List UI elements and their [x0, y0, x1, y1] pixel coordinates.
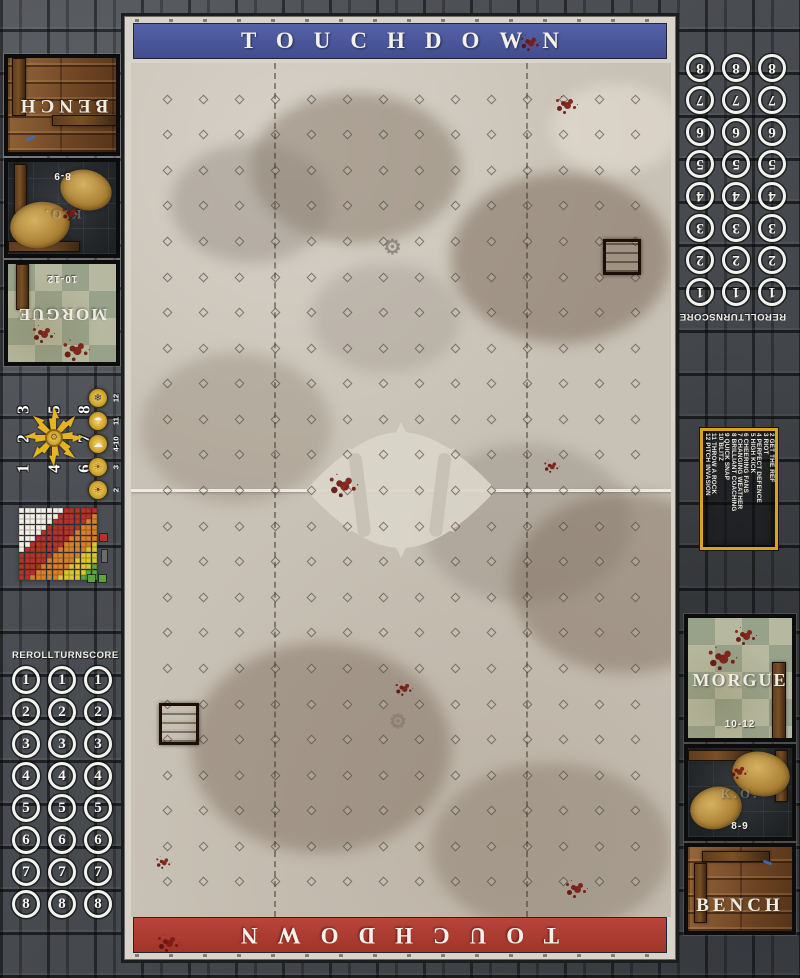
- grid-marker: [235, 94, 245, 104]
- grid-marker: [163, 130, 173, 140]
- grid-marker: [199, 735, 209, 745]
- grid-marker: [595, 308, 605, 318]
- grid-marker: [415, 663, 425, 673]
- range-cell-quick-pass: [58, 508, 63, 513]
- range-cell-short-pass: [53, 519, 58, 524]
- range-cell-long-bomb: [69, 564, 74, 569]
- grid-marker: [235, 379, 245, 389]
- grid-marker: [343, 663, 353, 673]
- grid-marker: [451, 165, 461, 175]
- wood-beam: [702, 851, 770, 862]
- grid-marker: [487, 450, 497, 460]
- grid-marker: [595, 699, 605, 709]
- weather-roll-label: 3: [106, 461, 126, 474]
- tracker-circle-3: 3: [722, 214, 750, 242]
- range-cell-short-pass: [30, 570, 35, 575]
- range-cell-long-pass: [47, 575, 52, 580]
- range-cell-long-pass: [86, 519, 91, 524]
- grid-marker: [307, 592, 317, 602]
- tracker-circle-8: 8: [48, 890, 76, 918]
- playing-field: ⚙ ⚙: [131, 63, 671, 917]
- blood-splatter: [70, 346, 76, 352]
- blood-splatter: [715, 653, 722, 660]
- grid-marker: [415, 735, 425, 745]
- grid-marker: [487, 735, 497, 745]
- range-cell-quick-pass: [30, 525, 35, 530]
- grid-marker: [235, 663, 245, 673]
- grid-marker: [343, 486, 353, 496]
- weather-roll-label: 12: [106, 392, 126, 405]
- range-cell-short-pass: [64, 530, 69, 535]
- grid-marker: [631, 486, 641, 496]
- range-cell-long-pass: [69, 558, 74, 563]
- dugout-ko-right: K.O. 8-9: [684, 744, 796, 841]
- grid-marker: [451, 94, 461, 104]
- grid-marker: [415, 877, 425, 887]
- grid-marker: [559, 521, 569, 531]
- tracker-circle-4: 4: [84, 762, 112, 790]
- grid-marker: [595, 165, 605, 175]
- kickoff-line: 5 HIGH KICK: [748, 433, 754, 545]
- grid-marker: [163, 557, 173, 567]
- range-cell-quick-pass: [41, 519, 46, 524]
- grid-marker: [451, 521, 461, 531]
- tracker-circle-4: 4: [48, 762, 76, 790]
- range-cell-long-pass: [69, 547, 74, 552]
- kickoff-table-lines: 2 GET THE REF3 RIOT4 PERFECT DEFENCE5 HI…: [704, 433, 774, 545]
- grid-marker: [163, 806, 173, 816]
- grid-marker: [631, 379, 641, 389]
- range-cell-long-pass: [75, 547, 80, 552]
- tracker-circle-5: 5: [758, 150, 786, 178]
- tracker-circle-8: 8: [12, 890, 40, 918]
- range-cell-long-pass: [53, 558, 58, 563]
- range-cell-short-pass: [53, 530, 58, 535]
- range-cell-long-pass: [86, 536, 91, 541]
- dugout-ko-left: 8-9 K.O.: [4, 158, 120, 258]
- kickoff-line: 8 BRILLIANT COACHING: [729, 433, 735, 545]
- range-cell-long-pass: [36, 570, 41, 575]
- range-cell-long-bomb: [75, 564, 80, 569]
- range-cell-quick-pass: [19, 519, 24, 524]
- grid-marker: [199, 699, 209, 709]
- frame-rivets-bottom: [135, 954, 665, 957]
- range-cell-long-bomb: [81, 553, 86, 558]
- range-cell-short-pass: [53, 536, 58, 541]
- range-cell-quick-pass: [19, 547, 24, 552]
- grid-marker: [379, 699, 389, 709]
- grid-marker: [199, 450, 209, 460]
- grid-marker: [559, 201, 569, 211]
- range-cell-long-pass: [53, 564, 58, 569]
- range-cell-short-pass: [75, 514, 80, 519]
- grid-marker: [415, 486, 425, 496]
- range-cell-long-pass: [53, 553, 58, 558]
- blood-bowl-game-mat: TOUCHDOWN TOUCHDOWN: [0, 0, 800, 978]
- grid-marker: [451, 663, 461, 673]
- grid-marker: [451, 414, 461, 424]
- range-cell-long-pass: [47, 570, 52, 575]
- range-cell-short-pass: [81, 519, 86, 524]
- grid-marker: [379, 379, 389, 389]
- grid-marker: [235, 450, 245, 460]
- tracker-grid: 111222333444555666777888: [12, 666, 112, 918]
- grid-marker: [163, 877, 173, 887]
- range-cell-short-pass: [30, 547, 35, 552]
- grid-marker: [235, 592, 245, 602]
- tracker-header-score: SCORE: [82, 650, 118, 661]
- tracker-circle-1: 1: [758, 278, 786, 306]
- tracker-circle-1: 1: [84, 666, 112, 694]
- grid-marker: [451, 592, 461, 602]
- grid-marker: [415, 450, 425, 460]
- grid-marker: [235, 414, 245, 424]
- morgue-label: MORGUE: [8, 304, 116, 324]
- range-cell-short-pass: [58, 530, 63, 535]
- grid-marker: [487, 130, 497, 140]
- grid-marker: [343, 272, 353, 282]
- range-cell-short-pass: [81, 514, 86, 519]
- grid-marker: [307, 770, 317, 780]
- tracker-circle-2: 2: [758, 246, 786, 274]
- range-cell-short-pass: [69, 508, 74, 513]
- grid-marker: [595, 486, 605, 496]
- grid-marker: [163, 165, 173, 175]
- range-cell-long-pass: [47, 564, 52, 569]
- range-cell-long-pass: [30, 575, 35, 580]
- grid-marker: [487, 272, 497, 282]
- grid-marker: [379, 557, 389, 567]
- grid-marker: [631, 592, 641, 602]
- grid-marker: [487, 841, 497, 851]
- grid-marker: [343, 201, 353, 211]
- range-cell-short-pass: [64, 519, 69, 524]
- grid-marker: [379, 521, 389, 531]
- grid-marker: [631, 557, 641, 567]
- grid-marker: [415, 165, 425, 175]
- grid-marker: [631, 806, 641, 816]
- grid-marker: [199, 308, 209, 318]
- grid-marker: [379, 272, 389, 282]
- grid-marker: [307, 272, 317, 282]
- range-cell-short-pass: [36, 536, 41, 541]
- grid-marker: [559, 414, 569, 424]
- grid-marker: [343, 343, 353, 353]
- range-cell-quick-pass: [19, 542, 24, 547]
- wide-zone-line-right: [526, 63, 528, 917]
- grid-marker: [559, 236, 569, 246]
- grid-marker: [379, 735, 389, 745]
- range-cell-long-pass: [92, 514, 97, 519]
- grid-marker: [199, 486, 209, 496]
- grid-marker: [379, 94, 389, 104]
- range-cell-out-of-range: [92, 564, 97, 569]
- blood-splatter: [571, 885, 576, 890]
- range-cell-quick-pass: [30, 514, 35, 519]
- ko-label: K.O.: [8, 206, 116, 222]
- range-cell-short-pass: [58, 519, 63, 524]
- range-cell-long-bomb: [58, 575, 63, 580]
- paint-mark: [763, 860, 772, 866]
- tracker-circle-7: 7: [48, 858, 76, 886]
- grid-marker: [307, 236, 317, 246]
- range-cell-short-pass: [64, 508, 69, 513]
- grid-marker: [415, 770, 425, 780]
- grid-marker: [559, 841, 569, 851]
- grid-marker: [343, 628, 353, 638]
- kickoff-table: 2 GET THE REF3 RIOT4 PERFECT DEFENCE5 HI…: [700, 428, 778, 550]
- range-cell-quick-pass: [36, 514, 41, 519]
- grid-marker: [631, 521, 641, 531]
- grid-marker: [379, 343, 389, 353]
- grid-marker: [451, 308, 461, 318]
- grid-marker: [451, 877, 461, 887]
- grid-marker: [595, 201, 605, 211]
- tracker-circle-7: 7: [12, 858, 40, 886]
- pitch: TOUCHDOWN TOUCHDOWN: [124, 16, 676, 960]
- grid-marker: [559, 699, 569, 709]
- range-cell-long-bomb: [75, 558, 80, 563]
- grid-marker: [631, 450, 641, 460]
- range-cell-short-pass: [25, 558, 30, 563]
- range-cell-out-of-range: [86, 570, 91, 575]
- range-cell-short-pass: [69, 519, 74, 524]
- tracker-circle-8: 8: [686, 54, 714, 82]
- grid-marker: [487, 201, 497, 211]
- end-zone-bottom: TOUCHDOWN: [133, 917, 667, 953]
- range-cell-long-pass: [86, 542, 91, 547]
- bench-label: BENCH: [8, 94, 116, 116]
- grid-marker: [595, 343, 605, 353]
- range-cell-quick-pass: [19, 530, 24, 535]
- scatter-hub-gear-icon: ⚙: [45, 429, 63, 447]
- tracker-circle-7: 7: [686, 86, 714, 114]
- range-cell-long-pass: [92, 536, 97, 541]
- grid-marker: [415, 343, 425, 353]
- dugout-morgue-right: MORGUE 10-12: [684, 614, 796, 742]
- grid-marker: [415, 94, 425, 104]
- grid-marker: [343, 414, 353, 424]
- grid-marker: [631, 130, 641, 140]
- grid-marker: [235, 735, 245, 745]
- grid-marker: [199, 557, 209, 567]
- range-cell-short-pass: [36, 553, 41, 558]
- grid-marker: [199, 806, 209, 816]
- grid-marker: [307, 201, 317, 211]
- grid-marker: [595, 735, 605, 745]
- range-cell-long-pass: [41, 570, 46, 575]
- grid-marker: [451, 236, 461, 246]
- grid-marker: [199, 841, 209, 851]
- range-cell-short-pass: [19, 570, 24, 575]
- wide-zone-line-left: [274, 63, 276, 917]
- grid-marker: [199, 663, 209, 673]
- grid-marker: [379, 165, 389, 175]
- grid-marker: [415, 308, 425, 318]
- range-cell-short-pass: [64, 514, 69, 519]
- grid-marker: [199, 165, 209, 175]
- grid-marker: [379, 592, 389, 602]
- grid-marker: [631, 770, 641, 780]
- range-cell-short-pass: [19, 564, 24, 569]
- grid-marker: [631, 841, 641, 851]
- grid-marker: [451, 379, 461, 389]
- range-cell-long-bomb: [81, 558, 86, 563]
- grid-marker: [379, 450, 389, 460]
- grid-marker: [163, 450, 173, 460]
- range-cell-long-pass: [69, 553, 74, 558]
- tracker-header-turn: TURN: [716, 311, 744, 322]
- range-cell-short-pass: [25, 553, 30, 558]
- grid-marker: [343, 699, 353, 709]
- tracker-circle-5: 5: [12, 794, 40, 822]
- range-cell-long-pass: [75, 530, 80, 535]
- range-cell-long-bomb: [75, 570, 80, 575]
- range-cell-short-pass: [75, 508, 80, 513]
- grid-marker: [415, 379, 425, 389]
- tracker-circle-1: 1: [48, 666, 76, 694]
- range-cell-long-pass: [69, 542, 74, 547]
- range-cell-long-bomb: [92, 553, 97, 558]
- ruler-legend-green: [88, 575, 95, 582]
- tracker-circle-8: 8: [758, 54, 786, 82]
- range-cell-short-pass: [30, 542, 35, 547]
- weather-row-11: ☂11: [88, 411, 122, 433]
- grid-marker: [451, 628, 461, 638]
- grid-marker: [163, 486, 173, 496]
- tracker-grid: 111222333444555666777888: [686, 54, 786, 306]
- grid-marker: [487, 379, 497, 389]
- bench-label: BENCH: [688, 895, 792, 917]
- grid-marker: [379, 628, 389, 638]
- grid-marker: [559, 308, 569, 318]
- grid-marker: [163, 592, 173, 602]
- grid-marker: [631, 735, 641, 745]
- frame-rivets-top: [135, 19, 665, 22]
- grid-marker: [415, 592, 425, 602]
- range-cell-short-pass: [81, 508, 86, 513]
- grid-marker: [235, 841, 245, 851]
- grid-marker: [307, 841, 317, 851]
- grid-marker: [631, 308, 641, 318]
- grid-marker: [595, 628, 605, 638]
- range-cell-long-bomb: [81, 570, 86, 575]
- grid-marker: [163, 663, 173, 673]
- tracker-circle-2: 2: [12, 698, 40, 726]
- range-cell-long-pass: [64, 564, 69, 569]
- grid-marker: [487, 628, 497, 638]
- gear-watermark-icon: ⚙: [383, 235, 402, 259]
- tracker-header-reroll: REROLL: [744, 311, 786, 322]
- range-cell-long-pass: [58, 570, 63, 575]
- touchdown-banner-bottom: TOUCHDOWN: [221, 922, 579, 948]
- range-cell-short-pass: [41, 530, 46, 535]
- range-cell-quick-pass: [47, 519, 52, 524]
- range-cell-quick-pass: [36, 525, 41, 530]
- grid-marker: [487, 165, 497, 175]
- tracker-circle-2: 2: [48, 698, 76, 726]
- tracker-circle-6: 6: [84, 826, 112, 854]
- grid-marker: [235, 628, 245, 638]
- grid-marker: [379, 877, 389, 887]
- range-cell-quick-pass: [19, 508, 24, 513]
- range-cell-short-pass: [64, 536, 69, 541]
- grid-marker: [595, 414, 605, 424]
- grid-marker: [343, 165, 353, 175]
- grid-marker: [451, 272, 461, 282]
- grid-marker: [595, 130, 605, 140]
- range-cell-short-pass: [41, 542, 46, 547]
- tracker-circle-2: 2: [722, 246, 750, 274]
- grid-marker: [199, 94, 209, 104]
- grid-marker: [379, 130, 389, 140]
- range-cell-quick-pass: [53, 514, 58, 519]
- range-cell-short-pass: [25, 547, 30, 552]
- scatter-template-compass: ⚙: [19, 403, 89, 473]
- tracker-header: REROLLTURNSCORE: [686, 311, 786, 322]
- grid-marker: [595, 841, 605, 851]
- range-cell-long-pass: [81, 542, 86, 547]
- grid-marker: [415, 557, 425, 567]
- range-cell-short-pass: [25, 564, 30, 569]
- range-cell-short-pass: [47, 530, 52, 535]
- grid-marker: [199, 130, 209, 140]
- range-cell-long-pass: [92, 519, 97, 524]
- grid-marker: [451, 770, 461, 780]
- tracker-circle-3: 3: [48, 730, 76, 758]
- grid-marker: [163, 272, 173, 282]
- range-cell-short-pass: [36, 564, 41, 569]
- range-cell-long-pass: [81, 547, 86, 552]
- grid-marker: [415, 130, 425, 140]
- grid-marker: [235, 272, 245, 282]
- range-cell-short-pass: [58, 542, 63, 547]
- grid-marker: [343, 130, 353, 140]
- grid-marker: [487, 521, 497, 531]
- grid-marker: [307, 379, 317, 389]
- grid-marker: [199, 877, 209, 887]
- blood-splatter: [38, 330, 43, 335]
- range-cell-long-bomb: [81, 564, 86, 569]
- range-cell-short-pass: [47, 547, 52, 552]
- range-cell-long-pass: [47, 558, 52, 563]
- trapdoor-crate: [603, 239, 641, 275]
- grid-marker: [379, 486, 389, 496]
- range-cell-quick-pass: [30, 530, 35, 535]
- tracker-circle-1: 1: [12, 666, 40, 694]
- range-cell-long-pass: [36, 575, 41, 580]
- range-cell-long-bomb: [86, 564, 91, 569]
- range-cell-short-pass: [30, 553, 35, 558]
- range-cell-long-bomb: [92, 558, 97, 563]
- grid-marker: [199, 236, 209, 246]
- grid-marker: [307, 735, 317, 745]
- blood-splatter-banner: [163, 939, 168, 944]
- tracker-circle-5: 5: [686, 150, 714, 178]
- tracker-circle-8: 8: [722, 54, 750, 82]
- grid-marker: [559, 770, 569, 780]
- range-cell-short-pass: [47, 525, 52, 530]
- grid-marker: [307, 94, 317, 104]
- range-cell-quick-pass: [25, 525, 30, 530]
- weather-row-3: ☀3: [88, 457, 122, 479]
- grid-marker: [631, 699, 641, 709]
- tracker-circle-1: 1: [722, 278, 750, 306]
- grid-marker: [235, 699, 245, 709]
- range-cell-long-bomb: [92, 542, 97, 547]
- grid-marker: [631, 201, 641, 211]
- tracker-circle-2: 2: [686, 246, 714, 274]
